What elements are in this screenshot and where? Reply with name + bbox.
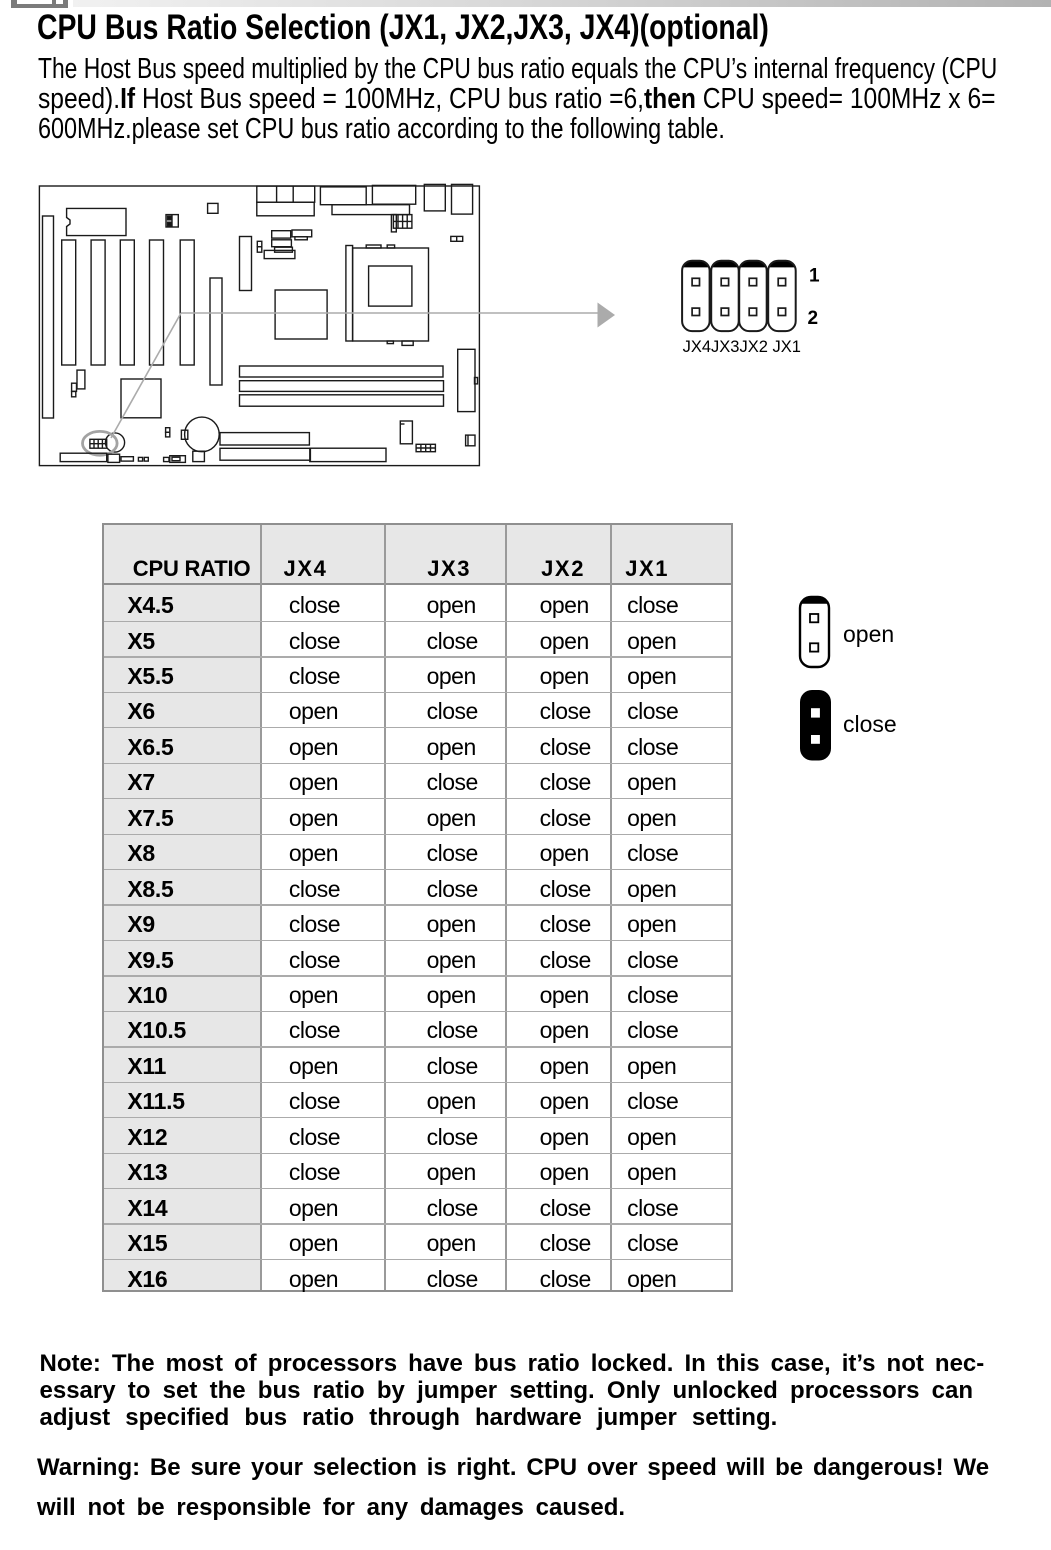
svg-text:2: 2 bbox=[808, 308, 819, 329]
svg-text:JX4JX3JX2 JX1: JX4JX3JX2 JX1 bbox=[683, 338, 801, 356]
svg-text:close: close bbox=[843, 711, 897, 737]
svg-text:1: 1 bbox=[809, 265, 820, 286]
svg-text:open: open bbox=[843, 621, 894, 647]
